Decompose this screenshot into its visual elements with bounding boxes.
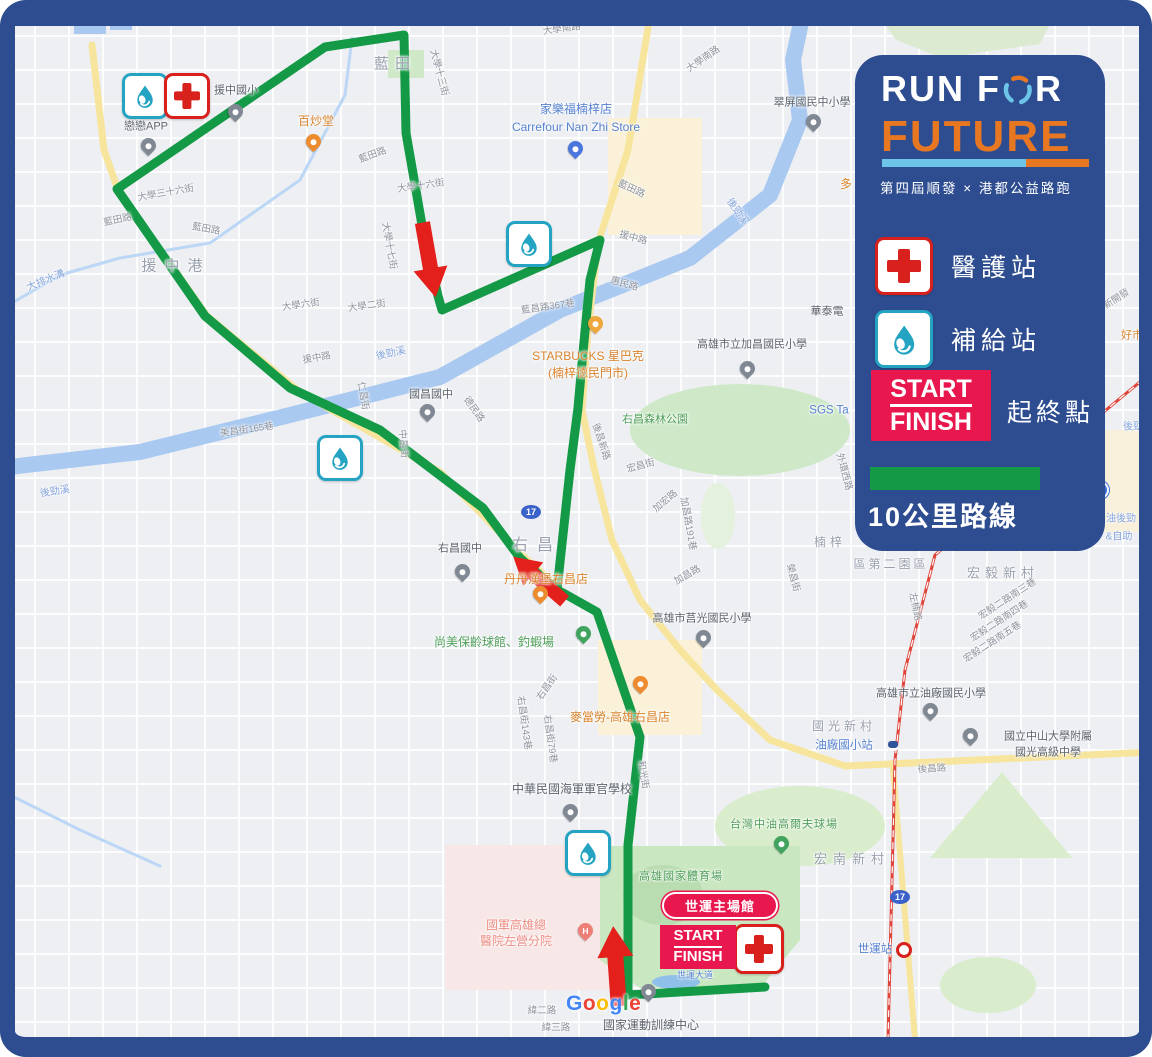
map-label: 後昌路 — [917, 764, 946, 777]
map-label: 多 — [840, 178, 852, 192]
water-drop-icon — [326, 444, 354, 472]
map-label: (楠梓德民門市) — [548, 367, 628, 381]
water-drop-icon — [574, 839, 602, 867]
map-label: 右昌國中 — [438, 543, 482, 556]
brand-underline-bar — [882, 159, 1089, 167]
map-label: 後勁 — [1123, 421, 1143, 433]
google-letter: e — [629, 992, 641, 1015]
map-pin-leisure — [573, 623, 594, 644]
brand-title-line1: RUN F R — [881, 68, 1063, 110]
supply-station-icon — [565, 830, 611, 876]
map-label: 油後勁 — [1106, 513, 1136, 525]
map-label: SGS Ta — [809, 404, 848, 417]
map-label: 國立中山大學附屬 — [1004, 731, 1092, 744]
map-label: 藍昌路367巷 — [521, 299, 576, 317]
map-pin-golf — [771, 833, 792, 854]
map-pin-food — [303, 131, 324, 152]
red-cross-icon — [174, 83, 200, 109]
map-label: 華泰電 — [811, 306, 844, 319]
map-label: 大學六街 — [281, 298, 320, 314]
map-label: 大學十六街 — [397, 178, 446, 195]
map-label: 區第二園區 — [853, 558, 928, 572]
map-label: 榮昌街 — [783, 563, 801, 593]
map-label: 楠梓 — [814, 536, 846, 550]
map-pin-school — [920, 700, 941, 721]
red-cross-icon — [887, 249, 920, 282]
map-pin-cart — [565, 138, 586, 159]
map-pin-generic — [138, 135, 159, 156]
map-label: 右昌街79巷 — [540, 714, 558, 764]
map-label: 大學南路 — [685, 45, 722, 76]
metro-station-icon — [896, 942, 912, 958]
map-label: 國家運動訓練中心 — [603, 1019, 699, 1033]
highway-shield: 17 — [890, 890, 910, 904]
map-pin-school — [693, 627, 714, 648]
map-label: 藍田路 — [358, 146, 389, 166]
map-pin-school — [452, 561, 473, 582]
google-letter: G — [566, 992, 583, 1015]
map-label: 世運大道 — [677, 970, 713, 980]
map-label: 大學南路 — [542, 22, 581, 38]
map-label: STARBUCKS 星巴克 — [532, 350, 644, 364]
map-pin-school — [560, 801, 581, 822]
brand-title-line2: FUTURE — [881, 112, 1071, 162]
map-label: 右昌森林公園 — [622, 414, 688, 427]
map-pin-school — [803, 111, 824, 132]
legend-panel: RUN F R FUTURE 第四屆順發 × 港都公益路跑 醫護站 — [855, 55, 1105, 551]
venue-pill: 世運主場館 — [662, 892, 778, 919]
map-label: 加昌路 — [673, 564, 703, 588]
map-label: 國光高級中學 — [1015, 747, 1081, 760]
map-label: 世運站 — [858, 943, 893, 956]
map-label: 援中國小 — [214, 85, 258, 98]
legend-row-medical: 醫護站 — [875, 237, 1041, 295]
map-label: 右昌街143巷 — [514, 696, 532, 751]
map-label: 高雄市莒光國民小學 — [653, 613, 752, 626]
map-label: 國昌國中 — [409, 389, 453, 402]
map-pin-food — [630, 673, 651, 694]
map-label: 藍田路 — [103, 213, 133, 230]
map-label: 新開發 — [1102, 288, 1132, 313]
map-label: 緯三路 — [542, 1024, 571, 1035]
map-label: 右昌 — [512, 537, 562, 555]
hospital-letter: H — [582, 926, 588, 936]
start-label: START — [674, 927, 723, 948]
map-label: 中昌街 — [395, 429, 408, 458]
water-drop-icon — [131, 82, 159, 110]
map-label: 援中路 — [618, 230, 648, 248]
red-cross-icon — [745, 935, 773, 963]
finish-label: FINISH — [673, 948, 722, 967]
supply-station-icon — [875, 310, 933, 368]
map-pin-school — [417, 401, 438, 422]
map-label: 家樂福楠梓店 — [540, 103, 612, 117]
map-label: 後勁溪 — [375, 345, 407, 362]
map-label: 大學二街 — [347, 299, 386, 315]
map-label: 援中港 — [141, 257, 210, 274]
map-label: 仁昌街 — [354, 381, 370, 411]
start-finish-marker: START FINISH — [660, 925, 736, 969]
venue-label: 世運主場館 — [685, 896, 755, 915]
map-label: 台灣中油高爾夫球場 — [730, 819, 838, 832]
brand-title-suffix: R — [1035, 68, 1063, 110]
map-label: 和光街 — [634, 760, 650, 790]
medical-station-label: 醫護站 — [951, 248, 1041, 284]
supply-station-icon — [317, 435, 363, 481]
map-label: 德民路 — [460, 395, 485, 425]
map-label: 高雄國家體育場 — [639, 871, 723, 884]
legend-start-label: START — [890, 374, 971, 407]
medical-station-icon — [164, 73, 210, 119]
supply-station-icon — [506, 221, 552, 267]
legend-finish-label: FINISH — [890, 407, 972, 437]
map-label: 好市 — [1121, 330, 1143, 343]
google-letter: o — [583, 992, 596, 1015]
highway-shield: 17 — [521, 505, 541, 519]
supply-station-icon — [122, 73, 168, 119]
start-finish-legend-icon: START FINISH — [871, 370, 991, 441]
map-label: 國光新村 — [812, 720, 876, 734]
map-pin-hospital: H — [575, 920, 596, 941]
map-pin-coffee — [585, 313, 606, 334]
route-distance-label: 10公里路線 — [868, 495, 1018, 534]
start-finish-label: 起終點 — [1007, 393, 1094, 429]
map-pin-school — [737, 358, 758, 379]
map-label: 美昌街165巷 — [220, 422, 275, 440]
map-label: 藍田 — [374, 55, 416, 72]
map-label: 宏昌街 — [626, 458, 656, 476]
map-label: 惠民路 — [609, 276, 639, 294]
legend-row-supply: 補給站 — [875, 310, 1041, 368]
supply-station-label: 補給站 — [951, 321, 1041, 357]
brand-o-icon — [1002, 74, 1034, 106]
map-label: 尚美保齡球館、釣蝦場 — [434, 636, 554, 650]
map-label: 左楠路 — [906, 592, 923, 622]
map-label: 緯二路 — [528, 1007, 557, 1018]
map-label: 加宏路 — [652, 489, 681, 516]
map-label: 高雄市立加昌國民小學 — [697, 339, 807, 352]
map-label: 大學十七街 — [378, 222, 397, 271]
map-label: 醫院左營分院 — [480, 935, 552, 949]
map-label: 後昌新路 — [589, 422, 611, 462]
map-label: 右昌街 — [535, 673, 560, 703]
medical-station-icon — [875, 237, 933, 295]
map-label: &自助 — [1106, 531, 1133, 543]
google-letter: g — [610, 992, 623, 1015]
map-label: 外環西路 — [833, 452, 853, 492]
map-label: 百炒堂 — [298, 115, 334, 129]
underline-blue-segment — [882, 159, 1026, 167]
map-pin-school — [960, 725, 981, 746]
map-label: 藍田路 — [616, 179, 646, 201]
map-label: 翠屏國民中小學 — [774, 97, 851, 110]
google-letter: o — [596, 992, 609, 1015]
underline-orange-segment — [1026, 159, 1089, 167]
map-label: 國軍高雄總 — [486, 919, 546, 933]
race-route-poster: 藍田援中港右昌宏毅新村宏南新村國光新村楠梓區第二園區戀戀APP援中國小國昌國中右… — [0, 0, 1152, 1057]
google-logo: Google — [566, 992, 641, 1016]
map-label: 戀戀APP — [124, 121, 168, 134]
map-label: 援中路 — [302, 351, 332, 367]
route-line-sample — [870, 467, 1040, 490]
map-label: Carrefour Nan Zhi Store — [512, 121, 640, 135]
map-pin-school — [225, 101, 246, 122]
map-label: 藍田路 — [191, 222, 221, 238]
medical-station-icon — [734, 924, 784, 974]
map-label: 宏南新村 — [814, 853, 890, 868]
event-subtitle: 第四屆順發 × 港都公益路跑 — [880, 177, 1072, 197]
map-label: 油廠國小站 — [815, 739, 873, 752]
brand-title-prefix: RUN F — [881, 68, 1001, 110]
map-label: 大學十三街 — [427, 49, 450, 98]
map-label: 中華民國海軍軍官學校 — [512, 783, 632, 797]
map-label: 大學三十六街 — [137, 184, 195, 205]
map-label: 後勁溪 — [39, 484, 70, 500]
map-label: 後勁溪 — [724, 196, 751, 227]
water-drop-icon — [886, 321, 922, 357]
map-label: 加昌路191巷 — [677, 497, 697, 552]
water-drop-icon — [515, 230, 543, 258]
map-label: 高雄市立油廠國民小學 — [876, 688, 986, 701]
map-label: 丹丹漢堡右昌店 — [504, 573, 588, 587]
map-label: 麥當勞-高雄右昌店 — [570, 711, 670, 725]
train-station-icon — [888, 741, 898, 751]
map-label: 大排水溝 — [25, 268, 66, 294]
